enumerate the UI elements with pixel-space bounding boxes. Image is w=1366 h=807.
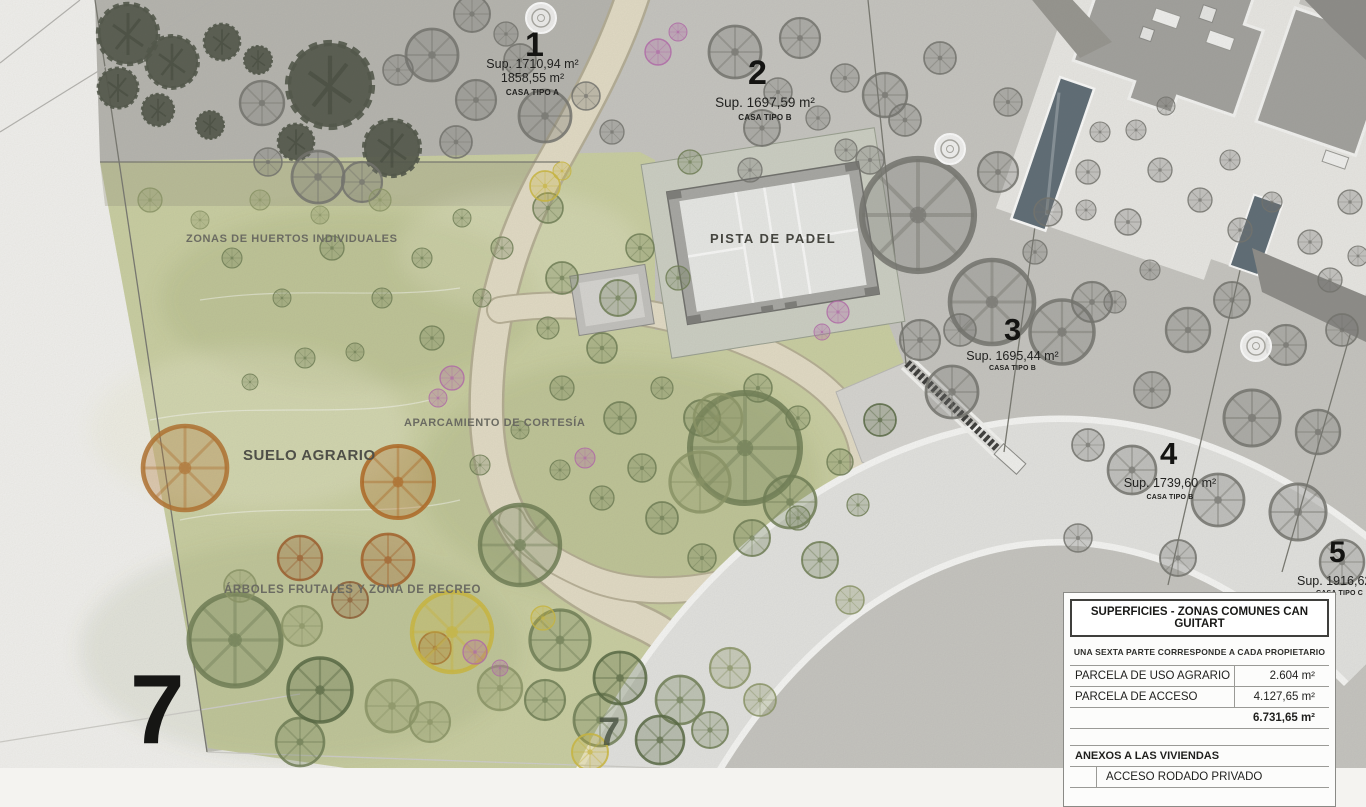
legend-row-label: PARCELA DE USO AGRARIO: [1070, 666, 1234, 686]
plot-4-info: Sup. 1739,60 m² CASA TIPO B: [1105, 476, 1235, 501]
legend-row-value: 4.127,65 m²: [1234, 687, 1329, 707]
legend-row-acceso: PARCELA DE ACCESO 4.127,65 m²: [1070, 686, 1329, 707]
plot-3-number: 3: [1004, 314, 1021, 345]
surface-legend-table: SUPERFICIES - ZONAS COMUNES CAN GUITART …: [1063, 592, 1336, 807]
plot-5-area1: Sup. 1916,62 m²: [1297, 574, 1366, 588]
zone-label-huertos: ZONAS DE HUERTOS INDIVIDUALES: [186, 233, 398, 245]
zone-label-suelo-agrario: SUELO AGRARIO: [243, 447, 376, 464]
site-plan-page: { "plan": { "plots": [ {"number":"1","ar…: [0, 0, 1366, 768]
legend-row-label: PARCELA DE ACCESO: [1070, 687, 1234, 707]
legend-row-value: 2.604 m²: [1234, 666, 1329, 686]
legend-total-row: 6.731,65 m²: [1070, 707, 1329, 728]
plot-4-area1: Sup. 1739,60 m²: [1105, 476, 1235, 490]
plot-1-area1: Sup. 1710,94 m²: [470, 57, 595, 71]
plot-3-type: CASA TIPO B: [950, 365, 1075, 372]
legend-color-swatch: [1070, 767, 1097, 787]
legend-row-agrario: PARCELA DE USO AGRARIO 2.604 m²: [1070, 665, 1329, 686]
plot-2-info: Sup. 1697,59 m² CASA TIPO B: [695, 95, 835, 122]
legend-section2-title: ANEXOS A LAS VIVIENDAS: [1070, 745, 1329, 767]
plot-3-area1: Sup. 1695,44 m²: [950, 349, 1075, 363]
plot-5-number: 5: [1329, 538, 1346, 568]
plot-2-number: 2: [748, 56, 767, 90]
padel-court-label: PISTA DE PADEL: [710, 231, 836, 246]
plot-4-type: CASA TIPO B: [1105, 494, 1235, 501]
parcel-7-small-number: 7: [598, 710, 620, 755]
plot-1-info: Sup. 1710,94 m² 1858,55 m² CASA TIPO A: [470, 57, 595, 97]
plot-4-number: 4: [1160, 438, 1177, 469]
legend-subtitle: UNA SEXTA PARTE CORRESPONDE A CADA PROPI…: [1070, 637, 1329, 665]
legend-section2-row: ACCESO RODADO PRIVADO: [1070, 767, 1329, 788]
zone-label-arboles: ÁRBOLES FRUTALES Y ZONA DE RECREO: [224, 584, 481, 596]
plot-2-type: CASA TIPO B: [695, 113, 835, 122]
plot-1-area2: 1858,55 m²: [470, 71, 595, 85]
plot-1-type: CASA TIPO A: [470, 88, 595, 97]
plot-2-area1: Sup. 1697,59 m²: [695, 95, 835, 111]
plot-3-info: Sup. 1695,44 m² CASA TIPO B: [950, 349, 1075, 372]
parcel-7-large-number: 7: [130, 660, 185, 758]
zone-label-aparcamiento: APARCAMIENTO DE CORTESÍA: [404, 417, 585, 429]
legend-title: SUPERFICIES - ZONAS COMUNES CAN GUITART: [1070, 599, 1329, 637]
legend-section2-label: ACCESO RODADO PRIVADO: [1097, 767, 1329, 787]
legend-total-value: 6.731,65 m²: [1234, 708, 1329, 728]
